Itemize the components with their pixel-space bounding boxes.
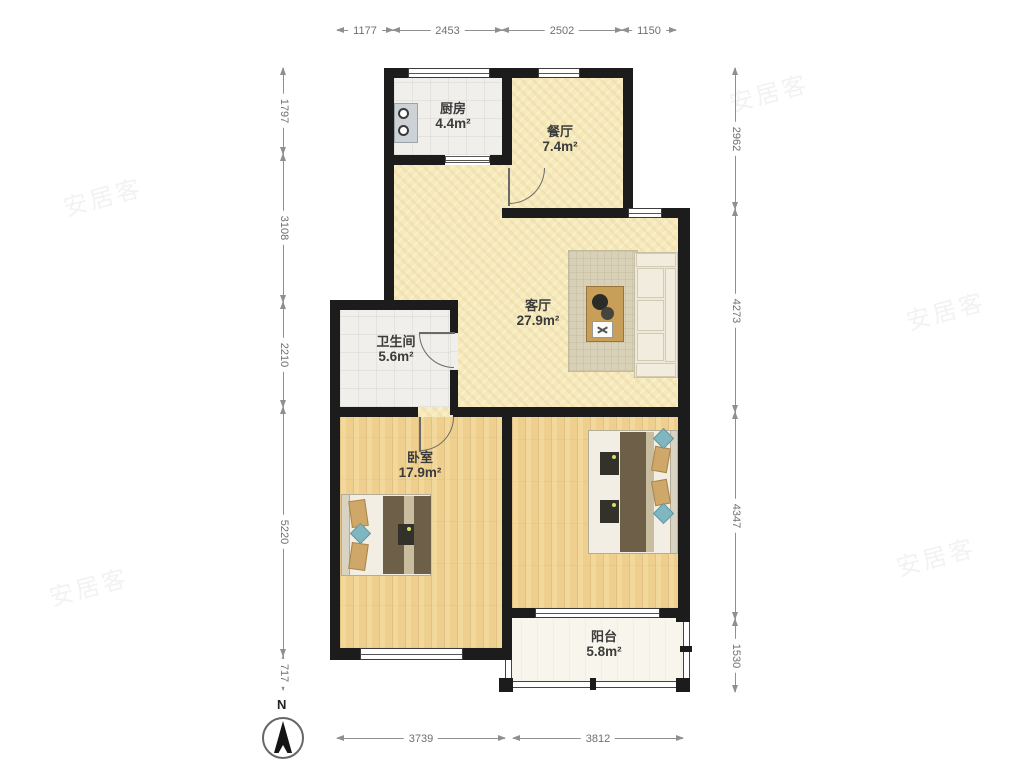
hall-floor (394, 165, 512, 218)
room-area: 7.4m² (542, 139, 577, 155)
tray-icon (592, 321, 613, 338)
bed-headboard (670, 430, 678, 554)
window (628, 208, 662, 218)
watermark: 安居客 (902, 282, 989, 337)
railing-post (676, 608, 690, 622)
wall (453, 407, 690, 417)
wall (330, 300, 458, 310)
burner-icon (398, 108, 409, 119)
dimension: 2962 (735, 68, 736, 209)
room-area: 5.8m² (586, 644, 621, 660)
watermark: 安居客 (45, 558, 132, 613)
dimension: 2210 (283, 302, 284, 407)
wall (330, 407, 418, 417)
room-label-dining: 餐厅 7.4m² (542, 124, 577, 155)
railing-post (590, 678, 596, 690)
compass-needle-notch (278, 745, 288, 754)
railing-post (499, 678, 513, 692)
railing-post (680, 646, 692, 652)
wall (450, 300, 458, 333)
dimension: 4273 (735, 209, 736, 412)
wall (502, 417, 512, 660)
room-area: 17.9m² (399, 465, 442, 481)
room-name: 卫生间 (376, 334, 415, 349)
room-name: 厨房 (435, 101, 470, 116)
sofa-cushion (637, 333, 664, 361)
sliding-door (445, 156, 490, 163)
room-label-living: 客厅 27.9m² (517, 298, 560, 329)
dimension-label: 717 (278, 659, 290, 687)
dimension-label: 2453 (430, 24, 464, 38)
dimension-label: 3108 (278, 211, 290, 245)
sofa-armrest (636, 253, 676, 267)
room-name: 卧室 (399, 450, 442, 465)
dimension-label: 3812 (581, 732, 615, 746)
dimension: 717 (283, 656, 284, 690)
room-area: 4.4m² (435, 116, 470, 132)
dimension-label: 1177 (348, 24, 382, 38)
room-label-balcony: 阳台 5.8m² (586, 629, 621, 660)
room-area: 5.6m² (376, 349, 415, 365)
room-label-bedroom: 卧室 17.9m² (399, 450, 442, 481)
dimension: 1177 (337, 30, 393, 31)
dimension: 3812 (513, 738, 683, 739)
doorway (418, 407, 453, 417)
cushion (398, 524, 414, 545)
nightstand-icon (600, 500, 619, 523)
wall (502, 68, 512, 165)
dimension-label: 2962 (730, 121, 742, 155)
dimension: 3108 (283, 154, 284, 302)
watermark: 安居客 (892, 528, 979, 583)
window (535, 608, 660, 618)
room-label-bathroom: 卫生间 5.6m² (376, 334, 415, 365)
dimension: 5220 (283, 407, 284, 656)
dimension: 3739 (337, 738, 505, 739)
dimension: 1797 (283, 68, 284, 154)
sofa-armrest (636, 363, 676, 377)
dimension-label: 5220 (278, 514, 290, 548)
sofa-cushion (637, 268, 664, 298)
decor-bowl-icon (601, 307, 614, 320)
sofa-back (665, 268, 676, 362)
room-area: 27.9m² (517, 313, 560, 329)
dimension: 2502 (502, 30, 622, 31)
room-name: 客厅 (517, 298, 560, 313)
railing (505, 681, 690, 688)
door-leaf (508, 168, 510, 206)
window (408, 68, 490, 78)
wall (490, 155, 512, 165)
dimension: 2453 (393, 30, 502, 31)
north-label: N (277, 697, 286, 712)
wall (384, 68, 394, 165)
dimension-label: 2210 (278, 337, 290, 371)
wall (384, 155, 394, 310)
railing-post (676, 678, 690, 692)
burner-icon (398, 125, 409, 136)
watermark: 安居客 (59, 168, 146, 223)
wall (623, 68, 633, 218)
dimension-label: 3739 (404, 732, 438, 746)
dimension-label: 4347 (730, 498, 742, 532)
stove-icon (394, 103, 418, 143)
window (360, 648, 463, 660)
dimension-label: 1150 (632, 24, 666, 38)
room-name: 餐厅 (542, 124, 577, 139)
dimension-label: 1797 (278, 94, 290, 128)
room-label-kitchen: 厨房 4.4m² (435, 101, 470, 132)
window (538, 68, 580, 78)
dimension: 1530 (735, 619, 736, 692)
dimension: 4347 (735, 412, 736, 619)
dimension-label: 2502 (545, 24, 579, 38)
sofa-cushion (637, 300, 664, 331)
dimension-label: 1530 (730, 638, 742, 672)
wall (330, 300, 340, 660)
nightstand-icon (600, 452, 619, 475)
dimension-label: 4273 (730, 293, 742, 327)
room-name: 阳台 (586, 629, 621, 644)
floor-plan: 安居客 安居客 安居客 安居客 安居客 安居客 (0, 0, 1024, 768)
door-leaf (419, 417, 421, 452)
door-leaf (419, 332, 455, 334)
dimension: 1150 (622, 30, 676, 31)
